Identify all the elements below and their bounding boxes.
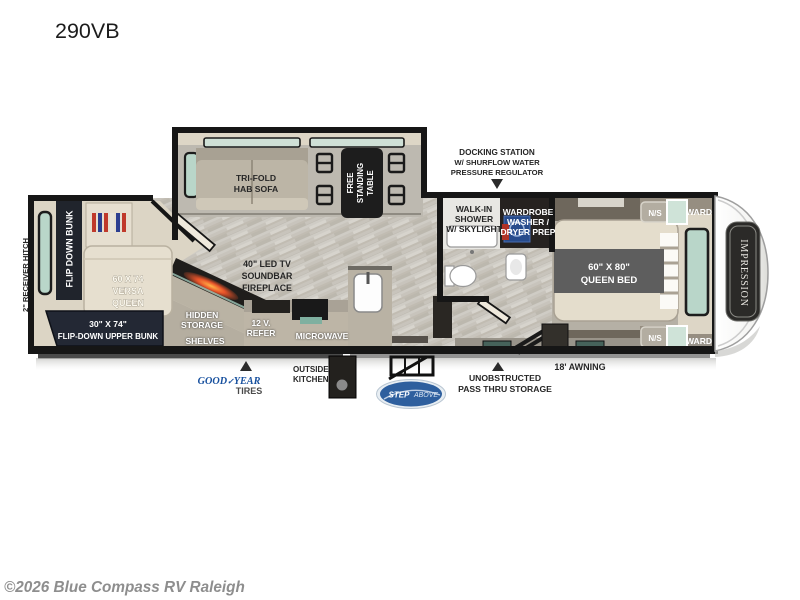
- svg-text:N/S: N/S: [648, 334, 662, 343]
- svg-text:18' AWNING: 18' AWNING: [554, 362, 605, 372]
- svg-text:MICROWAVE: MICROWAVE: [296, 331, 349, 341]
- svg-text:REFER: REFER: [247, 328, 276, 338]
- svg-text:STEP: STEP: [389, 391, 411, 400]
- svg-text:SHOWER: SHOWER: [455, 214, 493, 224]
- svg-text:STORAGE: STORAGE: [181, 320, 223, 330]
- svg-text:FIREPLACE: FIREPLACE: [242, 283, 292, 293]
- svg-text:W/ SHURFLOW WATER: W/ SHURFLOW WATER: [454, 158, 540, 167]
- svg-text:W/ SKYLIGHT: W/ SKYLIGHT: [446, 224, 503, 234]
- svg-text:TIRES: TIRES: [236, 386, 263, 396]
- svg-text:WALK-IN: WALK-IN: [456, 204, 492, 214]
- svg-text:WARDROBE: WARDROBE: [503, 207, 554, 217]
- svg-text:©2026 Blue Compass RV Raleigh: ©2026 Blue Compass RV Raleigh: [4, 579, 245, 596]
- svg-text:OUTSIDE: OUTSIDE: [293, 365, 329, 374]
- svg-text:QUEEN BED: QUEEN BED: [581, 275, 638, 286]
- svg-text:SOUNDBAR: SOUNDBAR: [242, 271, 293, 281]
- svg-text:HIDDEN: HIDDEN: [186, 310, 219, 320]
- svg-text:WASHER /: WASHER /: [507, 217, 550, 227]
- svg-text:IMPRESSION: IMPRESSION: [738, 239, 749, 306]
- svg-text:60 X 74: 60 X 74: [112, 274, 143, 284]
- svg-text:ABOVE: ABOVE: [413, 392, 438, 399]
- svg-text:SHELVES: SHELVES: [185, 336, 224, 346]
- svg-text:VERSA: VERSA: [112, 286, 144, 296]
- svg-text:40" LED TV: 40" LED TV: [243, 259, 291, 269]
- svg-text:DOCKING STATION: DOCKING STATION: [459, 148, 535, 157]
- svg-text:HAB SOFA: HAB SOFA: [234, 184, 278, 194]
- svg-text:FREE: FREE: [346, 173, 355, 194]
- svg-text:2" RECEIVER HITCH: 2" RECEIVER HITCH: [21, 238, 30, 312]
- svg-text:FLIP-DOWN UPPER BUNK: FLIP-DOWN UPPER BUNK: [58, 332, 159, 341]
- svg-text:TABLE: TABLE: [366, 170, 375, 195]
- svg-text:QUEEN: QUEEN: [112, 298, 144, 308]
- svg-text:DRYER PREP: DRYER PREP: [501, 227, 556, 237]
- svg-text:UNOBSTRUCTED: UNOBSTRUCTED: [469, 373, 541, 383]
- svg-text:12 V.: 12 V.: [251, 318, 270, 328]
- svg-text:30" X 74": 30" X 74": [89, 319, 127, 329]
- svg-text:STANDING: STANDING: [356, 163, 365, 203]
- svg-text:WARD: WARD: [686, 336, 712, 346]
- svg-text:N/S: N/S: [648, 209, 662, 218]
- svg-text:290VB: 290VB: [55, 19, 120, 43]
- svg-text:FLIP DOWN BUNK: FLIP DOWN BUNK: [65, 210, 75, 288]
- svg-text:KITCHEN: KITCHEN: [293, 375, 329, 384]
- svg-text:60" X 80": 60" X 80": [588, 262, 630, 273]
- svg-text:TRI-FOLD: TRI-FOLD: [236, 173, 276, 183]
- svg-text:PASS THRU STORAGE: PASS THRU STORAGE: [458, 384, 552, 394]
- svg-text:WARD: WARD: [686, 207, 712, 217]
- svg-text:PRESSURE REGULATOR: PRESSURE REGULATOR: [451, 168, 544, 177]
